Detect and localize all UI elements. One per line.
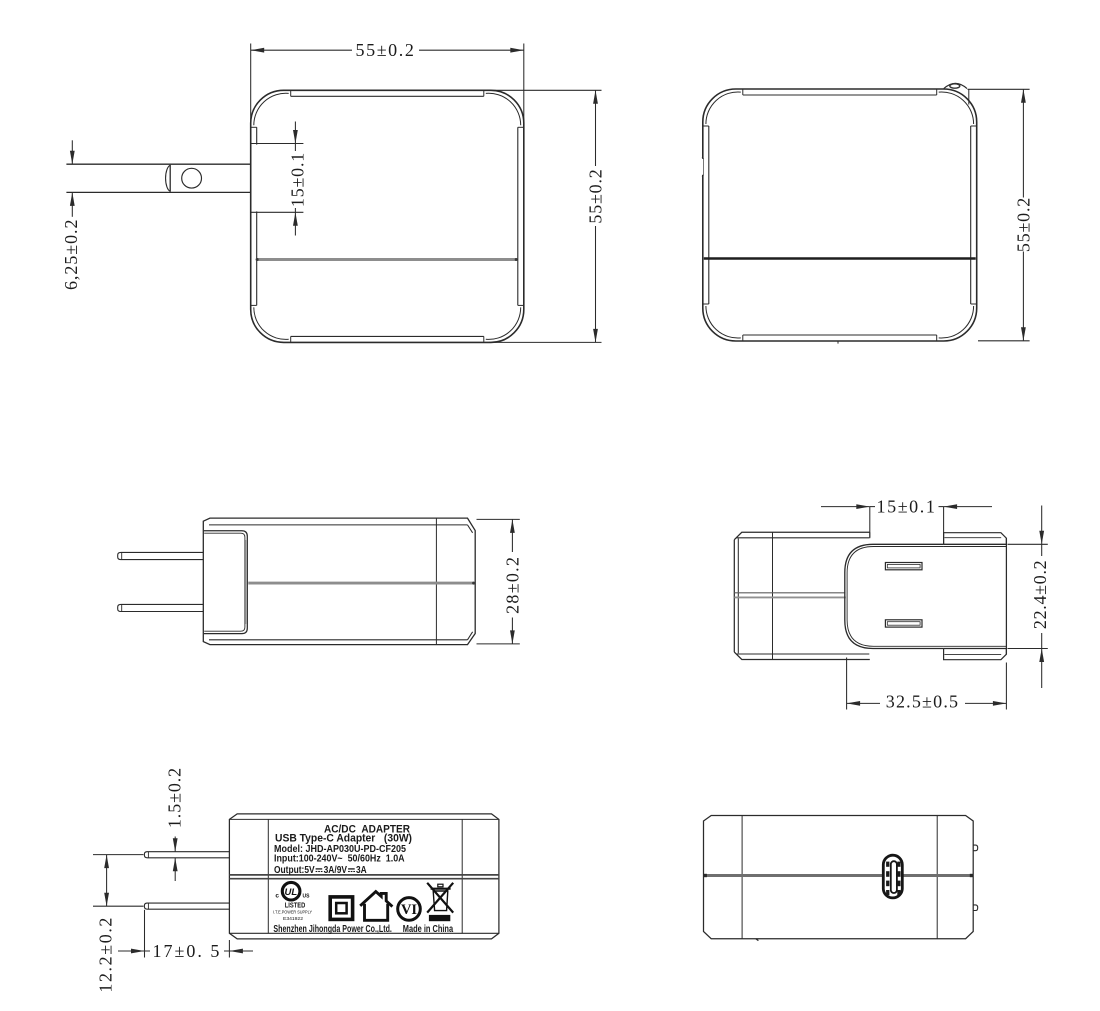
svg-text:c: c: [275, 893, 279, 900]
svg-text:3A: 3A: [356, 865, 367, 876]
svg-text:55±0.2: 55±0.2: [586, 168, 606, 223]
svg-text:55±0.2: 55±0.2: [1014, 197, 1034, 252]
svg-text:12.2±0.2: 12.2±0.2: [96, 916, 116, 993]
svg-text:Output:5V: Output:5V: [274, 865, 315, 876]
svg-text:USB Type-C Adapter (30W): USB Type-C Adapter (30W): [275, 832, 412, 844]
svg-text:Made in China: Made in China: [403, 924, 454, 935]
svg-text:22.4±0.2: 22.4±0.2: [1030, 560, 1050, 629]
svg-text:UL: UL: [284, 887, 297, 898]
svg-text:3A/9V: 3A/9V: [324, 865, 347, 876]
svg-text:US: US: [303, 894, 311, 900]
svg-text:28±0.2: 28±0.2: [502, 556, 522, 614]
svg-text:I.T.E.POWER SUPPLY: I.T.E.POWER SUPPLY: [273, 909, 313, 915]
svg-text:LISTED: LISTED: [285, 902, 306, 909]
svg-text:E341922: E341922: [283, 916, 303, 922]
svg-text:1.5±0.2: 1.5±0.2: [165, 767, 185, 828]
svg-text:Shenzhen Jihongda Power Co.,Lt: Shenzhen Jihongda Power Co.,Ltd.: [273, 924, 392, 935]
svg-text:15±0.1: 15±0.1: [288, 152, 308, 207]
svg-text:VI: VI: [401, 902, 417, 918]
svg-text:55±0.2: 55±0.2: [356, 40, 416, 60]
svg-text:Input:100-240V~ 50/60Hz 1.0A: Input:100-240V~ 50/60Hz 1.0A: [274, 854, 405, 865]
svg-text:17±0. 5: 17±0. 5: [153, 941, 222, 961]
svg-text:32.5±0.5: 32.5±0.5: [886, 692, 959, 712]
svg-text:6,25±0.2: 6,25±0.2: [61, 219, 81, 290]
svg-text:15±0.1: 15±0.1: [877, 496, 937, 516]
